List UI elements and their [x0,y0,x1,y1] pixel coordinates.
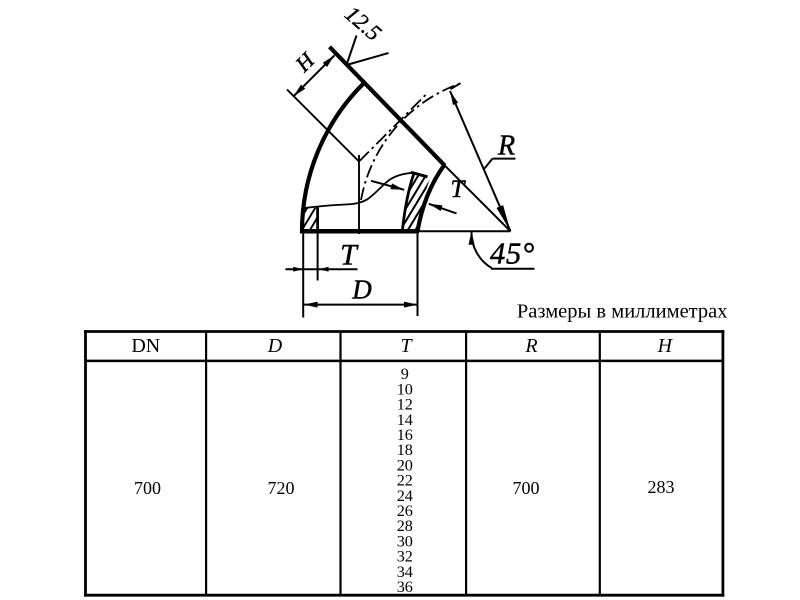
svg-text:H: H [289,47,319,77]
svg-text:Размеры в миллиметрах: Размеры в миллиметрах [517,301,728,323]
svg-text:45°: 45° [490,237,535,271]
svg-text:T: T [400,335,413,357]
svg-text:700: 700 [134,478,161,498]
svg-text:T: T [340,239,359,272]
svg-text:12.5: 12.5 [340,1,386,46]
svg-text:720: 720 [268,478,295,498]
svg-text:H: H [657,335,674,357]
svg-text:D: D [351,275,372,305]
svg-text:D: D [267,335,283,357]
svg-text:T: T [451,176,467,203]
svg-text:R: R [497,131,515,162]
svg-text:36: 36 [397,578,413,596]
svg-text:R: R [524,335,537,357]
svg-text:DN: DN [131,335,160,357]
svg-text:700: 700 [513,478,540,498]
svg-text:283: 283 [648,477,675,497]
